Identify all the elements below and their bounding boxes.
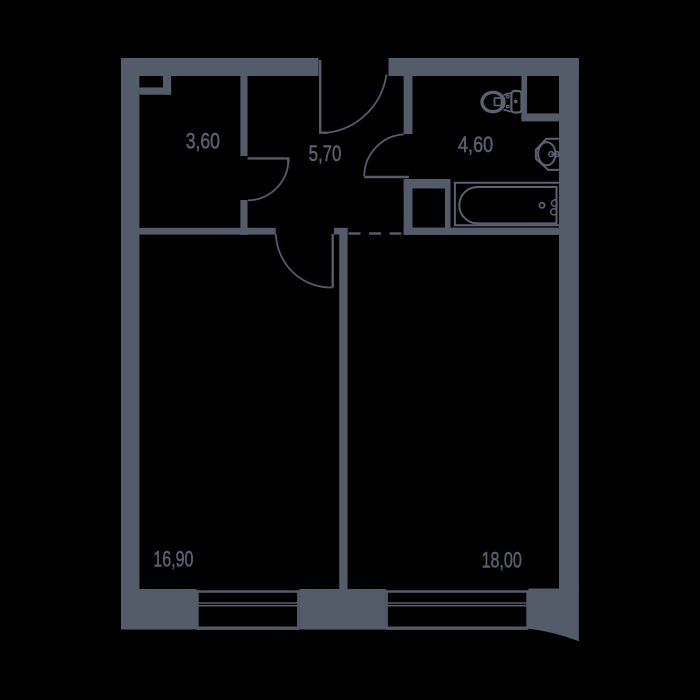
svg-text:3,60: 3,60 (186, 129, 220, 154)
svg-text:4,60: 4,60 (458, 132, 493, 157)
svg-text:5,70: 5,70 (309, 141, 342, 166)
svg-text:16,90: 16,90 (153, 546, 193, 571)
svg-text:18,00: 18,00 (482, 548, 522, 573)
